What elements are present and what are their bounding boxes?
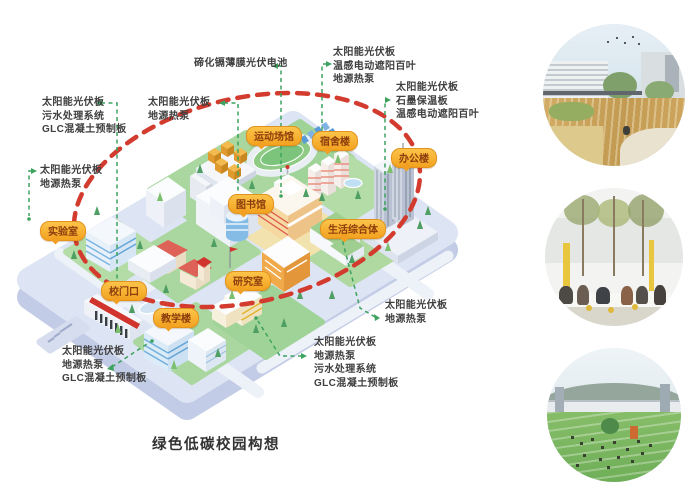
annotation-top-center: 碲化镉薄膜光伏电池	[194, 57, 288, 71]
annotation-line: 污水处理系统	[314, 363, 399, 377]
annotation-line: 碲化镉薄膜光伏电池	[194, 57, 288, 71]
building-label-text: 运动场馆	[254, 132, 294, 143]
building-label-dormitory: 宿舍楼	[312, 131, 358, 151]
building-label-text: 实验室	[48, 227, 78, 238]
photo-atrium-interior-rendering	[545, 188, 683, 326]
annotation-mid-upper: 太阳能光伏板 地源热泵	[148, 96, 210, 123]
annotation-line: 太阳能光伏板	[62, 345, 147, 359]
annotation-line: 温感电动遮阳百叶	[396, 108, 479, 122]
annotation-line: 太阳能光伏板	[314, 336, 399, 350]
annotation-line: 石墨保温板	[396, 95, 479, 109]
annotation-line: 地源热泵	[62, 359, 147, 373]
building-label-text: 教学楼	[161, 314, 191, 325]
annotation-line: 地源热泵	[385, 313, 447, 327]
annotation-line: 地源热泵	[314, 350, 399, 364]
people-group	[654, 285, 666, 306]
annotation-line: GLC混凝土预制板	[62, 372, 147, 386]
building-label-text: 校门口	[109, 287, 139, 298]
building-label-research-room: 研究室	[225, 271, 271, 291]
annotation-line: 太阳能光伏板	[40, 164, 102, 178]
photo-campus-wetland-rendering	[543, 24, 685, 166]
building-label-text: 图书馆	[236, 200, 266, 211]
building-label-office-bldg: 办公楼	[391, 148, 437, 168]
birds	[607, 41, 609, 43]
annotation-right: 太阳能光伏板 石墨保温板 温感电动遮阳百叶	[396, 81, 479, 122]
building-label-sports-hall: 运动场馆	[246, 126, 302, 146]
people-group	[559, 286, 573, 304]
building-label-text: 宿舍楼	[320, 137, 350, 148]
building-label-teaching-bldg: 教学楼	[153, 308, 199, 328]
annotation-line: 地源热泵	[148, 110, 210, 124]
annotation-bottom-center: 太阳能光伏板 地源热泵 污水处理系统 GLC混凝土预制板	[314, 336, 399, 390]
building-label-library: 图书馆	[228, 194, 274, 214]
building-label-text: 生活综合体	[328, 225, 378, 236]
annotation-line: 太阳能光伏板	[333, 46, 416, 60]
photo-terraced-park-rendering	[547, 348, 681, 482]
building-label-life-complex: 生活综合体	[320, 219, 386, 239]
people-group	[636, 286, 648, 304]
annotation-line: 太阳能光伏板	[148, 96, 210, 110]
annotation-line: GLC混凝土预制板	[314, 377, 399, 391]
annotation-bottom-left: 太阳能光伏板 地源热泵 GLC混凝土预制板	[62, 345, 147, 386]
annotation-line: 太阳能光伏板	[396, 81, 479, 95]
building-label-school-gate: 校门口	[101, 281, 147, 301]
people-group	[621, 286, 633, 305]
cyclist-figure	[623, 126, 630, 135]
annotation-left-mid: 太阳能光伏板 地源热泵	[40, 164, 102, 191]
annotation-line: 污水处理系统	[42, 110, 127, 124]
building-label-text: 办公楼	[399, 154, 429, 165]
diagram-title: 绿色低碳校园构想	[152, 433, 280, 454]
annotation-left-upper: 太阳能光伏板 污水处理系统 GLC混凝土预制板	[42, 96, 127, 137]
page: 实验室 校门口 教学楼 研究室 图书馆 运动场馆 宿舍楼 办公楼 生活综合体 碲…	[0, 0, 700, 488]
annotation-line: 温感电动遮阳百叶	[333, 60, 416, 74]
annotation-line: 地源热泵	[40, 178, 102, 192]
park-crowd-dots	[571, 436, 574, 439]
people-group	[596, 287, 610, 304]
annotation-line: GLC混凝土预制板	[42, 123, 127, 137]
annotation-line: 太阳能光伏板	[42, 96, 127, 110]
building-label-laboratory: 实验室	[40, 221, 86, 241]
people-group	[577, 285, 589, 306]
building-label-text: 研究室	[233, 277, 263, 288]
campus-map-illustration	[0, 0, 520, 488]
annotation-bottom-right: 太阳能光伏板 地源热泵	[385, 299, 447, 326]
annotation-line: 太阳能光伏板	[385, 299, 447, 313]
